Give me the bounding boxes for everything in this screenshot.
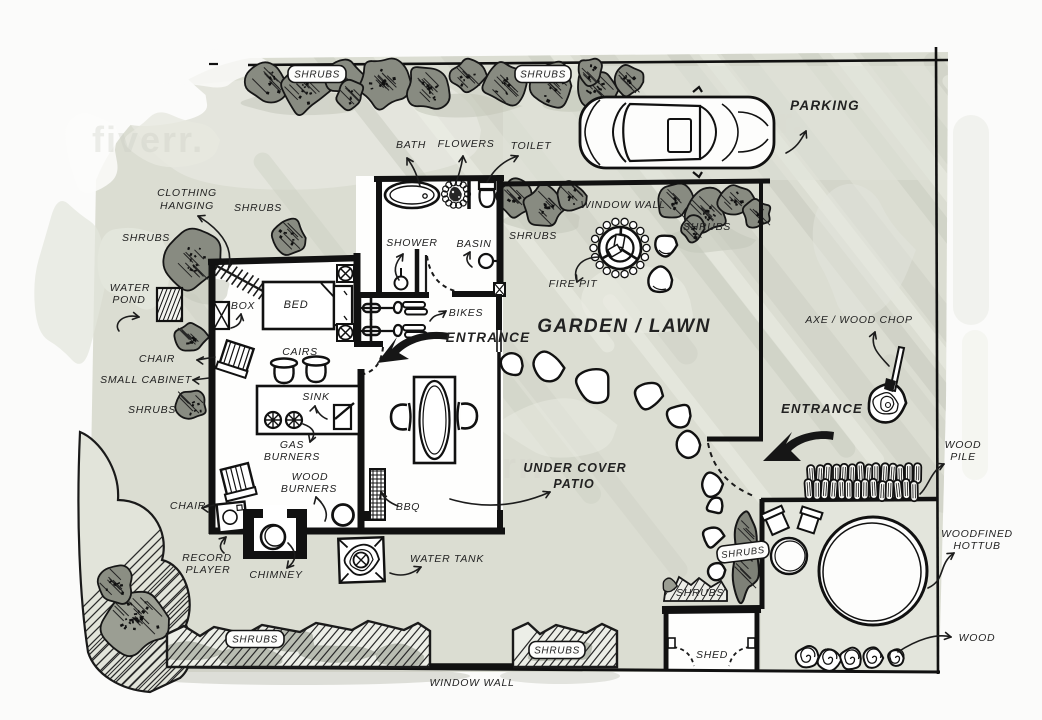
svg-text:BIKES: BIKES	[449, 307, 483, 319]
svg-text:SHRUBS: SHRUBS	[128, 404, 176, 416]
svg-text:SHRUBS: SHRUBS	[509, 230, 557, 242]
svg-text:CHIMNEY: CHIMNEY	[249, 569, 303, 581]
svg-text:WATER TANK: WATER TANK	[410, 553, 484, 565]
svg-text:SHRUBS: SHRUBS	[520, 70, 566, 81]
svg-text:CLOTHING: CLOTHING	[157, 187, 217, 199]
svg-text:fiverr.: fiverr.	[92, 119, 204, 160]
svg-text:TOILET: TOILET	[511, 140, 553, 152]
svg-text:ENTRANCE: ENTRANCE	[781, 401, 863, 416]
svg-text:SHRUBS: SHRUBS	[676, 587, 724, 599]
svg-text:BED: BED	[284, 299, 309, 311]
svg-text:BATH: BATH	[396, 139, 426, 151]
svg-text:FIRE PIT: FIRE PIT	[549, 278, 599, 290]
svg-text:HANGING: HANGING	[160, 200, 214, 212]
svg-text:GARDEN / LAWN: GARDEN / LAWN	[537, 316, 711, 337]
svg-text:UNDER COVER: UNDER COVER	[523, 461, 626, 475]
svg-text:WOOD: WOOD	[959, 632, 996, 644]
svg-text:GAS: GAS	[280, 439, 304, 451]
svg-text:SMALL CABINET: SMALL CABINET	[100, 374, 193, 386]
svg-text:HOTTUB: HOTTUB	[953, 540, 1000, 552]
svg-text:WOODFINED: WOODFINED	[941, 528, 1013, 540]
svg-text:BBQ: BBQ	[396, 501, 420, 513]
svg-text:FLOWERS: FLOWERS	[438, 138, 495, 150]
svg-text:PARKING: PARKING	[790, 98, 860, 113]
svg-text:WINDOW WALL: WINDOW WALL	[580, 199, 665, 211]
svg-text:BASIN: BASIN	[456, 238, 491, 250]
svg-text:PILE: PILE	[950, 451, 976, 463]
svg-text:SHRUBS: SHRUBS	[122, 232, 170, 244]
svg-text:CHAIR: CHAIR	[139, 353, 175, 365]
svg-text:AXE / WOOD CHOP: AXE / WOOD CHOP	[804, 314, 912, 326]
svg-text:PLAYER: PLAYER	[186, 564, 231, 576]
svg-text:SHRUBS: SHRUBS	[232, 635, 278, 646]
svg-text:SINK: SINK	[302, 391, 330, 403]
svg-text:BURNERS: BURNERS	[264, 451, 320, 463]
svg-text:BOX: BOX	[231, 300, 256, 312]
svg-text:WOOD: WOOD	[945, 439, 982, 451]
svg-text:SHRUBS: SHRUBS	[234, 202, 282, 214]
svg-text:BURNERS: BURNERS	[281, 483, 337, 495]
svg-text:SHRUBS: SHRUBS	[294, 70, 340, 81]
svg-text:CAIRS: CAIRS	[282, 346, 318, 358]
svg-text:ENTRANCE: ENTRANCE	[446, 330, 531, 345]
svg-text:WATER: WATER	[110, 282, 150, 294]
svg-text:WOOD: WOOD	[292, 471, 329, 483]
svg-text:SHRUBS: SHRUBS	[534, 646, 580, 657]
svg-text:CHAIR: CHAIR	[170, 500, 206, 512]
svg-text:RECORD: RECORD	[182, 552, 232, 564]
svg-text:SHRUBS: SHRUBS	[683, 221, 731, 233]
svg-text:POND: POND	[112, 294, 145, 306]
svg-text:WINDOW WALL: WINDOW WALL	[429, 677, 514, 689]
svg-text:PATIO: PATIO	[553, 477, 594, 491]
svg-text:SHOWER: SHOWER	[386, 237, 437, 249]
svg-text:SHED: SHED	[696, 649, 728, 661]
